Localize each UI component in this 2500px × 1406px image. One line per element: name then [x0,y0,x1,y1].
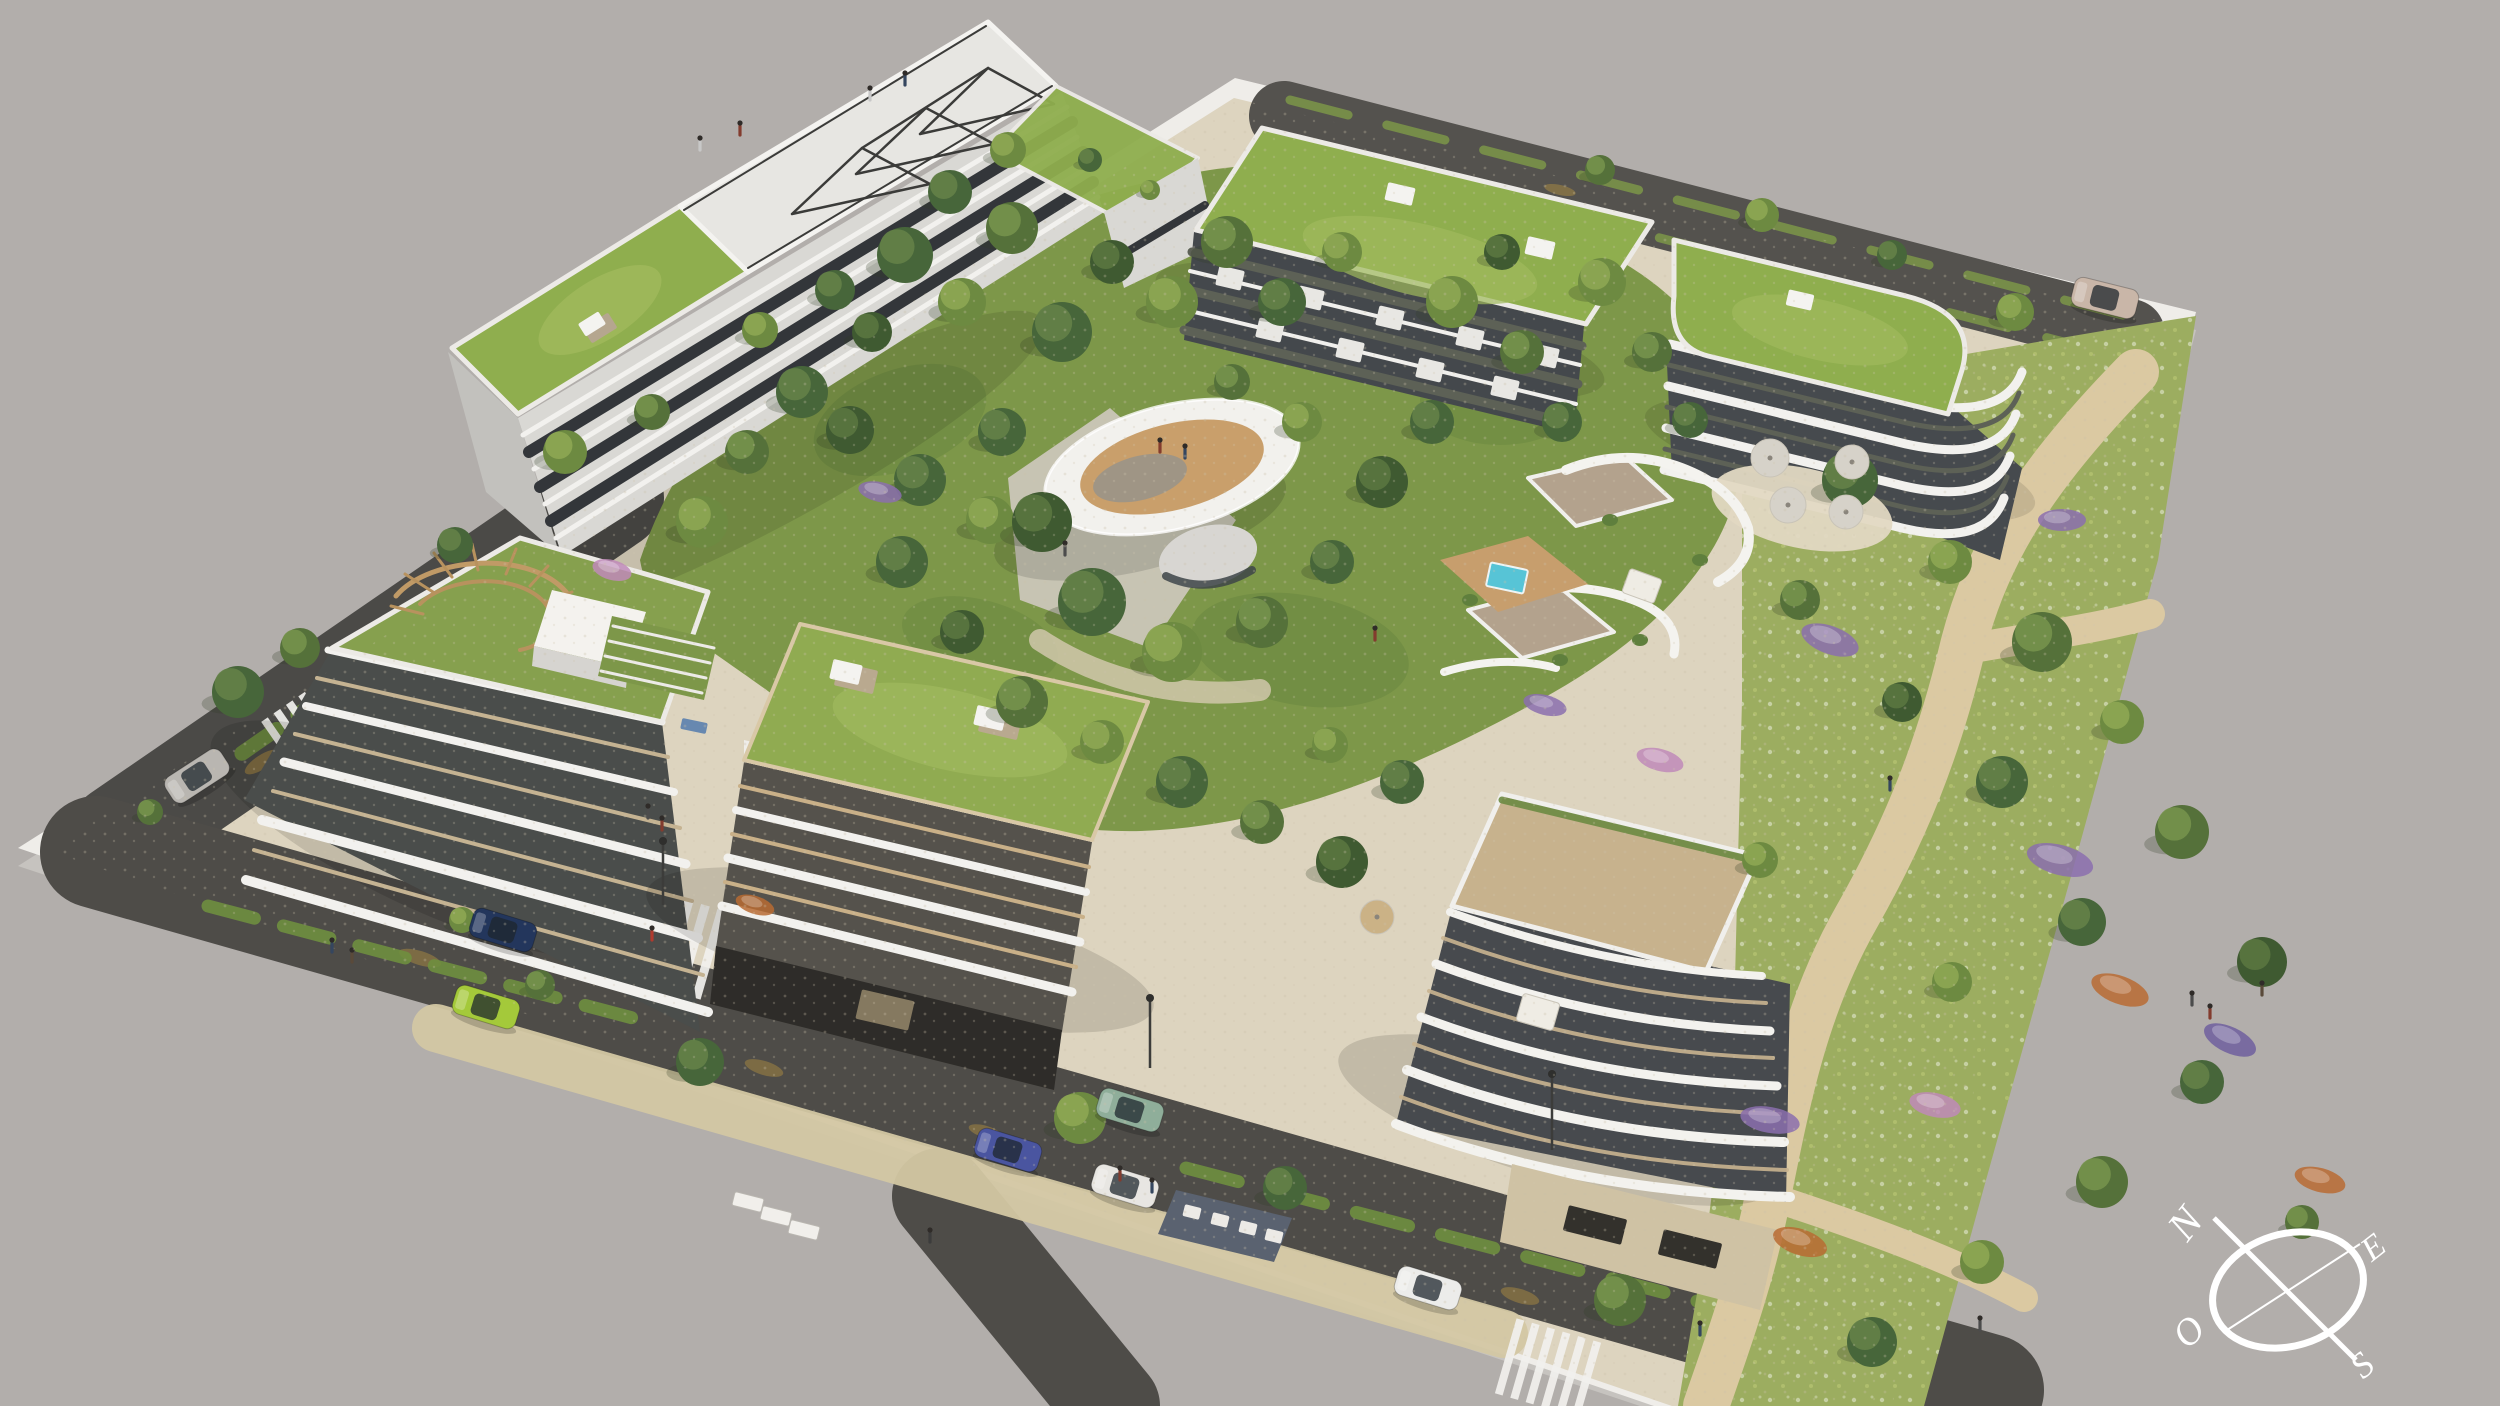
tree-highlight [744,313,766,335]
person-head [2189,990,2194,995]
tree-highlight [989,204,1021,236]
tree-highlight [215,668,247,700]
generated-scene [0,0,2500,1406]
tree-highlight [880,229,915,264]
tree-highlight [2240,939,2271,970]
tree-highlight [2079,1158,2111,1190]
tree-highlight [992,133,1014,155]
person-head [697,135,702,140]
tree-highlight [439,528,461,550]
tree-highlight [817,272,842,297]
person-head [867,85,872,90]
person-head [2207,1003,2212,1008]
tree-highlight [2287,1206,2308,1227]
tree-highlight [545,432,572,459]
tree-highlight [2102,702,2129,729]
tree-highlight [2182,1062,2209,1089]
tree-highlight [2158,807,2191,840]
person-head [927,1227,932,1232]
tree-highlight [1587,156,1606,175]
person-head [2259,980,2264,985]
person-head [737,120,742,125]
tree-highlight [1747,199,1768,220]
tree-highlight [930,172,957,199]
aerial-masterplan-rendering: N E S O [0,0,2500,1406]
person-head [902,70,907,75]
tree-highlight [2060,900,2090,930]
tree-highlight [1079,149,1094,164]
tree-highlight [636,395,658,417]
person-head [1977,1315,1982,1320]
tree-highlight [282,630,307,655]
tree-highlight [1962,1242,1989,1269]
architectural-rendering-stage: N E S O [0,0,2500,1406]
